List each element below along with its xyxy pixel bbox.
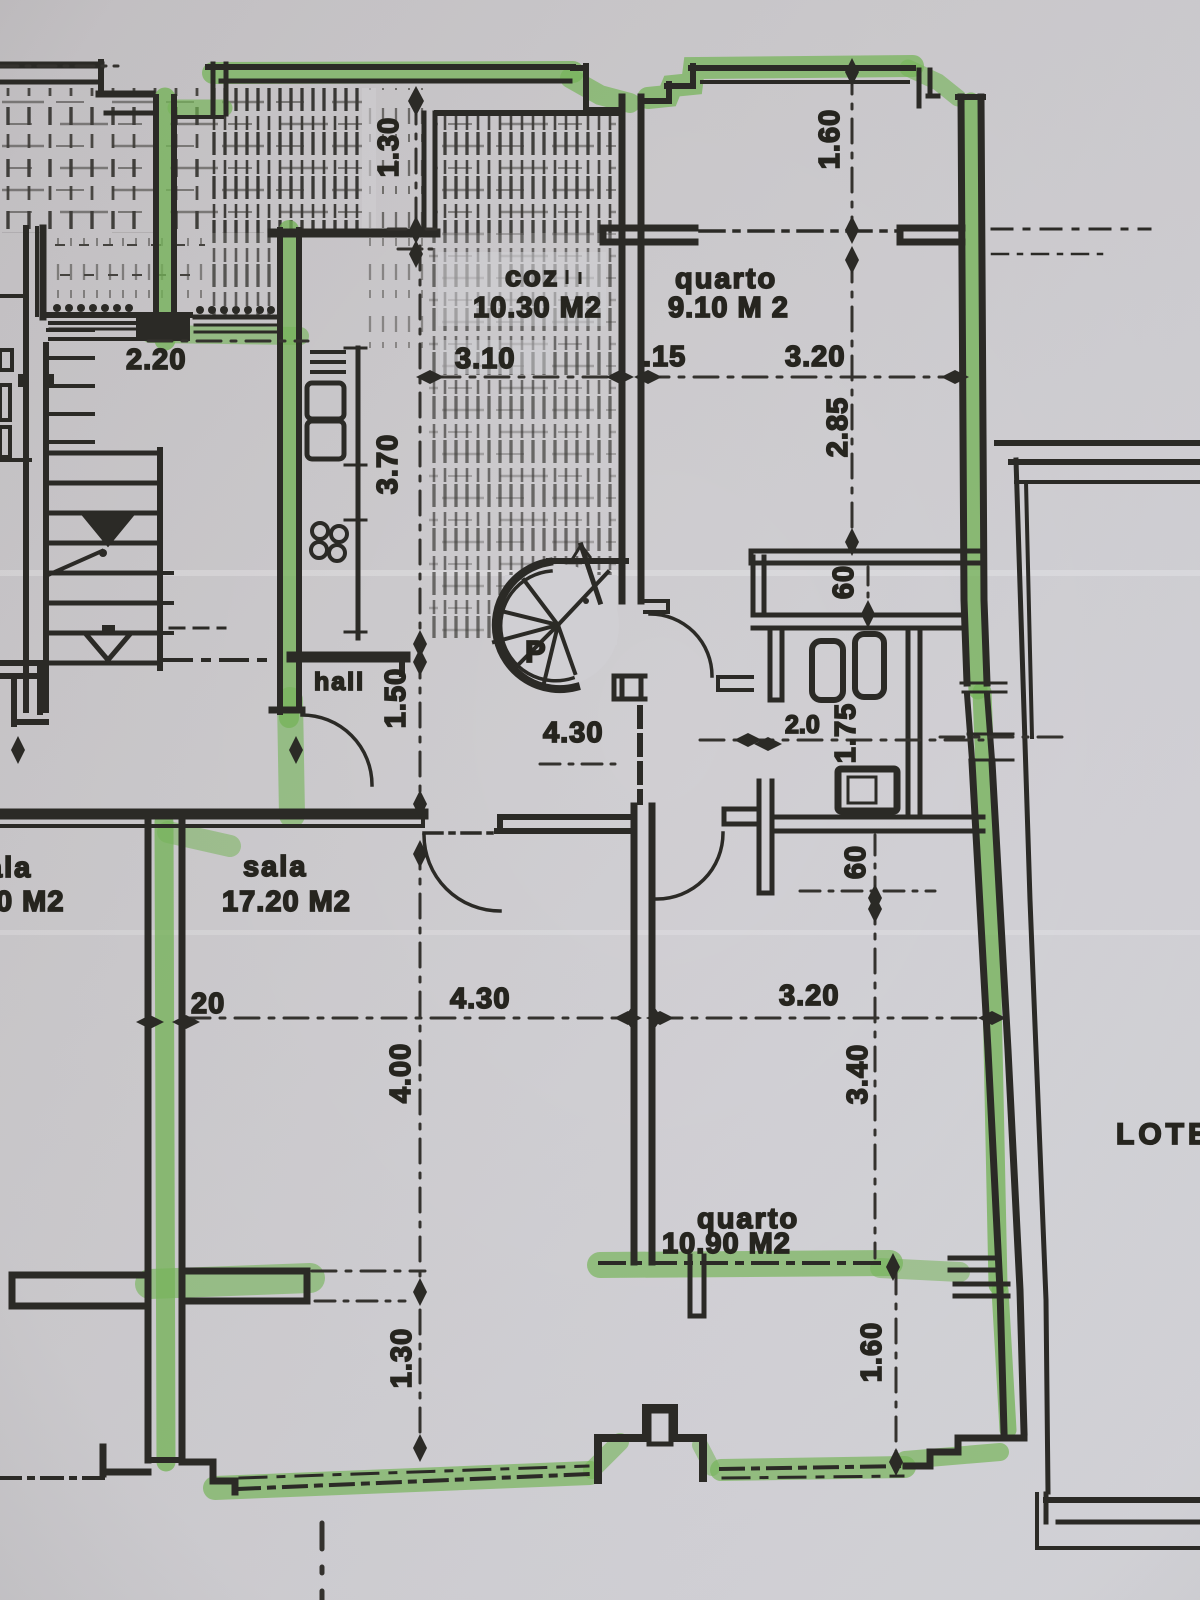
svg-text:3.20: 3.20 bbox=[785, 341, 845, 373]
svg-text:3.70: 3.70 bbox=[372, 434, 404, 494]
svg-text:2.0: 2.0 bbox=[785, 711, 820, 739]
svg-text:1.30: 1.30 bbox=[373, 117, 405, 177]
svg-text:9.10 M 2: 9.10 M 2 bbox=[668, 292, 789, 324]
svg-text:60: 60 bbox=[828, 565, 860, 599]
svg-text:1.60: 1.60 bbox=[856, 1322, 888, 1382]
svg-text:LOTE: LOTE bbox=[1116, 1118, 1200, 1151]
svg-text:10.30 M2: 10.30 M2 bbox=[473, 292, 602, 324]
svg-text:1.30: 1.30 bbox=[386, 1328, 418, 1388]
svg-text:2.20: 2.20 bbox=[126, 344, 186, 376]
svg-text:P: P bbox=[525, 634, 546, 669]
svg-text:10.90 M2: 10.90 M2 bbox=[662, 1228, 791, 1260]
svg-text:coz: coz bbox=[505, 261, 559, 293]
svg-text:4.00: 4.00 bbox=[385, 1043, 417, 1103]
svg-text:3.40: 3.40 bbox=[842, 1044, 874, 1104]
svg-text:2.85: 2.85 bbox=[822, 397, 854, 457]
svg-text:sala: sala bbox=[243, 851, 307, 883]
svg-text:hall: hall bbox=[314, 668, 365, 696]
svg-text:4.30: 4.30 bbox=[543, 717, 603, 749]
svg-text:17.20 M2: 17.20 M2 bbox=[222, 886, 351, 918]
svg-text:quarto: quarto bbox=[675, 263, 777, 295]
svg-text:60: 60 bbox=[840, 845, 872, 879]
svg-text:.15: .15 bbox=[643, 341, 686, 373]
svg-text:ala: ala bbox=[0, 852, 32, 884]
svg-text:1.50: 1.50 bbox=[380, 668, 412, 728]
svg-text:3.10: 3.10 bbox=[455, 343, 515, 375]
svg-text:20: 20 bbox=[191, 988, 225, 1020]
svg-text:4.30: 4.30 bbox=[450, 983, 510, 1015]
svg-text:0 M2: 0 M2 bbox=[0, 886, 64, 918]
svg-text:1.60: 1.60 bbox=[814, 109, 846, 169]
svg-text:3.20: 3.20 bbox=[779, 980, 839, 1012]
svg-text:1.75: 1.75 bbox=[830, 703, 862, 763]
